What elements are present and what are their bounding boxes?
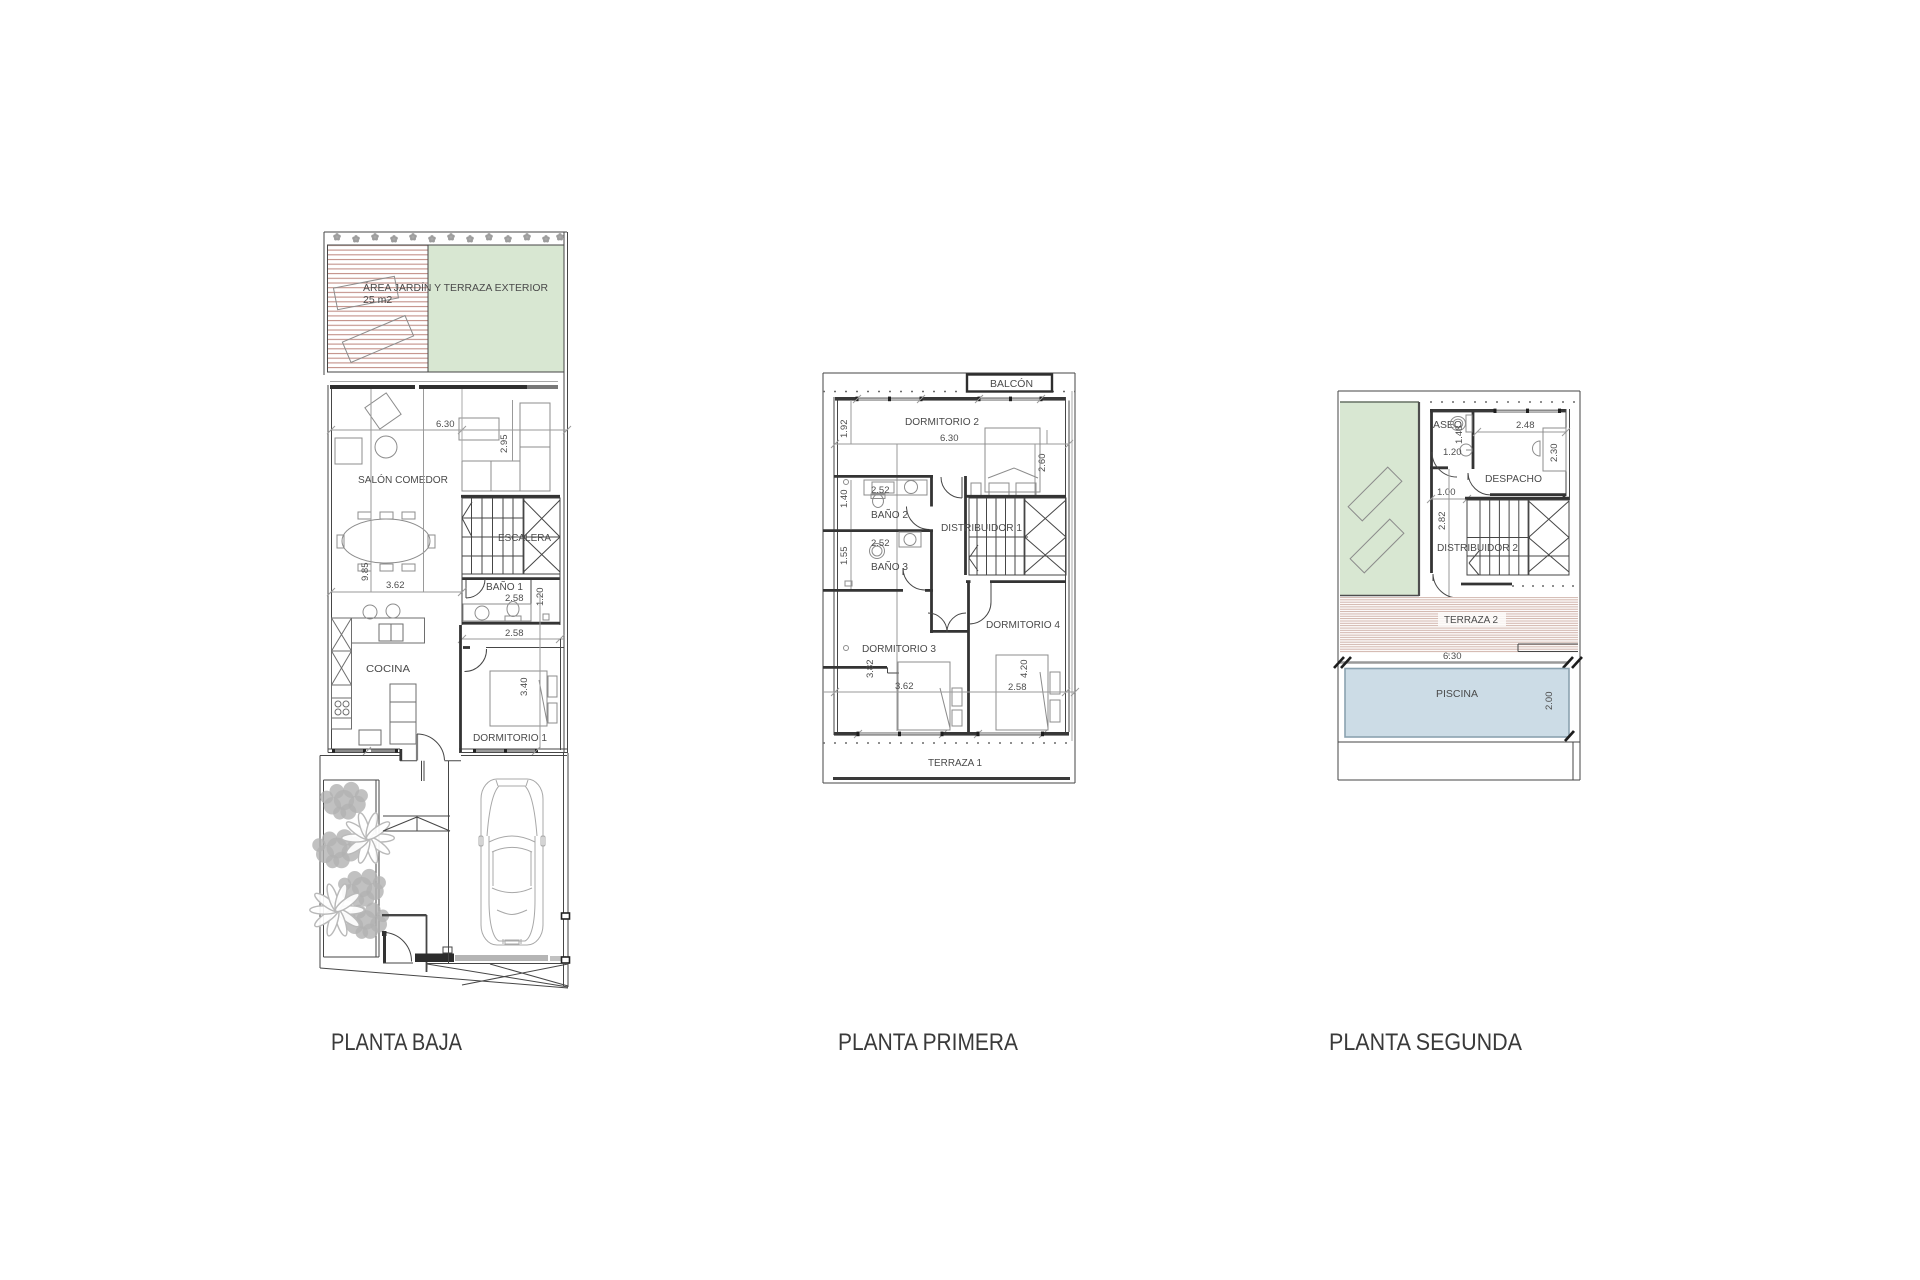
svg-text:PLANTA PRIMERA: PLANTA PRIMERA: [838, 1029, 1018, 1056]
svg-text:PLANTA BAJA: PLANTA BAJA: [331, 1029, 462, 1056]
svg-text:1.48: 1.48: [1454, 426, 1465, 445]
svg-text:TERRAZA 1: TERRAZA 1: [928, 757, 982, 769]
svg-text:1.92: 1.92: [839, 420, 850, 439]
svg-text:BAÑO 1: BAÑO 1: [486, 580, 523, 593]
svg-text:6.30: 6.30: [1443, 651, 1462, 662]
svg-text:3.62: 3.62: [895, 681, 914, 692]
svg-text:6.30: 6.30: [436, 419, 455, 430]
svg-text:2.58: 2.58: [505, 628, 524, 639]
svg-text:4.20: 4.20: [1019, 660, 1030, 679]
svg-text:SALÓN COMEDOR: SALÓN COMEDOR: [358, 473, 448, 486]
svg-text:PISCINA: PISCINA: [1436, 688, 1478, 700]
svg-text:3.82: 3.82: [865, 660, 876, 679]
svg-text:BAÑO 2: BAÑO 2: [871, 508, 908, 521]
svg-text:ESCALERA: ESCALERA: [498, 532, 551, 544]
svg-text:COCINA: COCINA: [366, 663, 410, 675]
svg-text:25 m2: 25 m2: [363, 294, 392, 306]
svg-text:2.00: 2.00: [1544, 692, 1555, 711]
svg-text:1.00: 1.00: [1437, 487, 1456, 498]
svg-text:2.52: 2.52: [871, 485, 890, 496]
svg-text:TERRAZA 2: TERRAZA 2: [1444, 614, 1498, 626]
svg-text:2.95: 2.95: [499, 435, 510, 454]
svg-text:DORMITORIO 1: DORMITORIO 1: [473, 732, 547, 744]
svg-text:DORMITORIO 4: DORMITORIO 4: [986, 619, 1060, 631]
svg-text:2.48: 2.48: [1516, 420, 1535, 431]
svg-text:3.62: 3.62: [386, 580, 405, 591]
svg-text:DESPACHO: DESPACHO: [1485, 473, 1542, 485]
svg-text:2.58: 2.58: [505, 593, 524, 604]
svg-text:ÁREA JARDÍN Y TERRAZA EXTERIOR: ÁREA JARDÍN Y TERRAZA EXTERIOR: [363, 281, 548, 294]
svg-text:2.58: 2.58: [1008, 682, 1027, 693]
svg-text:2.60: 2.60: [1037, 454, 1048, 473]
svg-text:DORMITORIO 3: DORMITORIO 3: [862, 643, 936, 655]
svg-text:2.82: 2.82: [1437, 512, 1448, 531]
svg-text:6.30: 6.30: [940, 433, 959, 444]
svg-text:PLANTA SEGUNDA: PLANTA SEGUNDA: [1329, 1029, 1522, 1056]
svg-text:1.55: 1.55: [839, 547, 850, 566]
svg-text:DISTRIBUIDOR 1: DISTRIBUIDOR 1: [941, 522, 1022, 534]
svg-text:1.40: 1.40: [839, 490, 850, 509]
svg-text:3.40: 3.40: [519, 678, 530, 697]
svg-text:BALCÓN: BALCÓN: [990, 377, 1033, 390]
svg-text:2.30: 2.30: [1549, 444, 1560, 463]
svg-text:1.20: 1.20: [1443, 447, 1462, 458]
svg-text:DORMITORIO 2: DORMITORIO 2: [905, 416, 979, 428]
svg-text:9.85: 9.85: [360, 563, 371, 582]
svg-text:2.52: 2.52: [871, 538, 890, 549]
